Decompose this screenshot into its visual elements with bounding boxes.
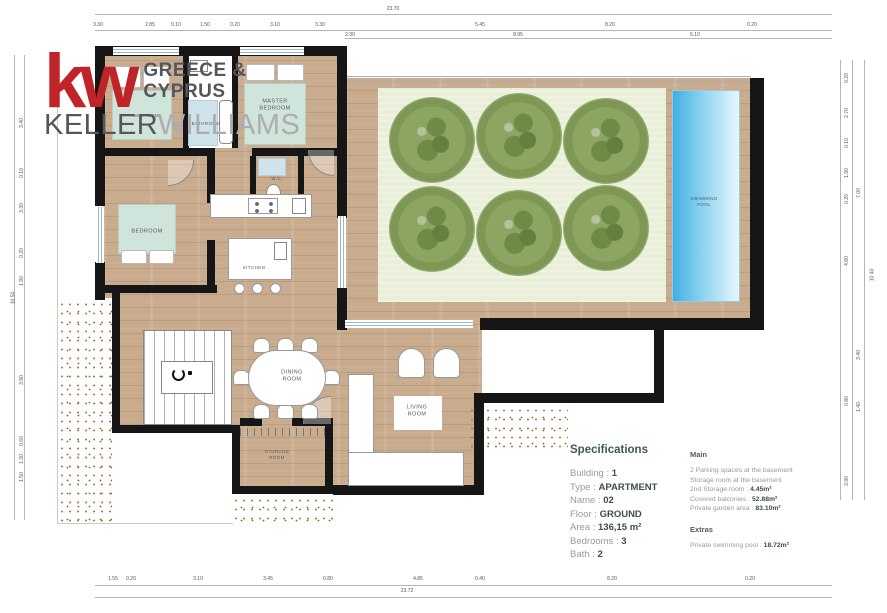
sliding-door-window	[338, 216, 346, 288]
wall-segment	[95, 262, 105, 300]
dim-label: 7.00	[856, 188, 862, 198]
spec-value: 02	[603, 495, 614, 506]
spec-value: 1	[612, 468, 617, 479]
extras-title: Extras	[690, 525, 830, 534]
dim-line	[95, 597, 832, 598]
dim-label: 0.10	[171, 22, 181, 28]
bar-stool	[270, 283, 281, 294]
dim-label: 23.70	[387, 6, 400, 12]
room-label-living-room: LIVING ROOM	[407, 405, 427, 420]
dim-line	[345, 38, 832, 39]
dim-label: 5.45	[475, 22, 485, 28]
dim-label: 1.90	[844, 168, 850, 178]
dim-label: 0.10	[19, 168, 25, 178]
spec-label: Bedrooms :	[570, 536, 621, 547]
spec-row: Building : 1	[570, 467, 690, 481]
wall-segment	[750, 78, 764, 330]
floor-plan-canvas: 23.70 3.302.850.101.500.203.103.305.458.…	[0, 0, 887, 613]
dim-label: 3.40	[856, 350, 862, 360]
tree	[563, 185, 649, 271]
dim-label: 2.30	[345, 32, 355, 38]
main-details-block: Main 2 Parking spaces at the basement St…	[690, 450, 830, 551]
dim-label: 10.50	[10, 292, 16, 305]
dim-label: 0.10	[844, 138, 850, 148]
dim-label: 3.90	[19, 375, 25, 385]
tree	[389, 97, 475, 183]
dim-label: 2.70	[844, 108, 850, 118]
wall-segment	[333, 485, 484, 495]
dim-label: 3.45	[263, 576, 273, 582]
spec-row: Type : APARTMENT	[570, 481, 690, 495]
dim-line	[95, 585, 832, 586]
dim-label: 3.40	[19, 118, 25, 128]
dim-line	[840, 60, 841, 500]
bed-pillow	[149, 250, 174, 264]
dim-line	[14, 55, 15, 520]
gravel-area-left	[58, 300, 112, 522]
dim-label: 1.90	[19, 276, 25, 286]
room-label-storage-room: STORAGE ROOM	[265, 449, 290, 461]
tree	[563, 98, 649, 184]
storage-shelving	[240, 428, 326, 436]
dim-label: 0.40	[475, 576, 485, 582]
wall-segment	[232, 425, 240, 494]
room-label-swimming-pool: SWIMMING POOL	[690, 196, 717, 208]
keller-williams-logo: kw GREECE & CYPRUS KELLERWILLIAMS	[44, 52, 300, 140]
sliding-door-window	[345, 320, 473, 328]
dim-label: 8.20	[605, 22, 615, 28]
dim-label: 1.50	[200, 22, 210, 28]
exterior-below-stairs	[103, 433, 232, 525]
cooktop	[248, 198, 278, 214]
extras-value: 18.72m²	[764, 542, 789, 549]
extras-label: Private swimming pool :	[690, 542, 764, 549]
dim-label: 8.20	[607, 576, 617, 582]
spec-row: Floor : GROUND	[570, 508, 690, 522]
dim-label: 2.85	[145, 22, 155, 28]
main-label: Covered balconies :	[690, 496, 752, 503]
logo-keller: KELLER	[44, 109, 158, 141]
armchair	[398, 348, 425, 378]
dim-label: 0.20	[844, 73, 850, 83]
sofa	[348, 452, 464, 486]
wall-segment	[337, 180, 347, 218]
window	[96, 207, 104, 263]
dim-label: 3.30	[315, 22, 325, 28]
wall-segment	[474, 393, 484, 495]
main-row: Storage room at the basement	[690, 476, 830, 486]
terrace-railing	[345, 76, 751, 82]
dim-label: 1.30	[19, 454, 25, 464]
dining-chair	[301, 404, 318, 419]
dim-label: 0.60	[19, 436, 25, 446]
gravel-area-storage	[232, 496, 334, 526]
dim-label: 0.20	[844, 194, 850, 204]
wall-segment	[112, 293, 120, 433]
dim-label: 0.80	[323, 576, 333, 582]
bed-pillow	[121, 250, 147, 264]
dim-line	[95, 30, 832, 31]
extras-row: Private swimming pool : 18.72m²	[690, 541, 830, 551]
dim-label: 1.50	[19, 472, 25, 482]
dim-label: 0.20	[230, 22, 240, 28]
dim-label: 5.10	[690, 32, 700, 38]
spec-label: Floor :	[570, 509, 600, 520]
dim-label: 1.40	[856, 402, 862, 412]
main-row: Private garden area : 83.10m²	[690, 504, 830, 514]
specifications-title: Specifications	[570, 444, 690, 456]
wall-segment	[654, 318, 760, 330]
dim-label: 1.55	[108, 576, 118, 582]
dim-line	[852, 60, 853, 500]
spec-value: 3	[621, 536, 626, 547]
spec-value: 2	[597, 549, 602, 560]
spec-value: GROUND	[600, 509, 642, 520]
room-label-kitchen: KITCHEN	[243, 265, 266, 271]
dim-label: 4.85	[413, 576, 423, 582]
spec-label: Type :	[570, 482, 599, 493]
wc-shower-floor	[258, 158, 286, 176]
dining-chair	[277, 404, 294, 419]
kitchen-sink	[292, 198, 306, 214]
wall-segment	[325, 418, 333, 494]
specifications-block: Specifications Building : 1 Type : APART…	[570, 444, 690, 562]
wall-segment	[95, 148, 215, 156]
dim-label: 0.20	[745, 576, 755, 582]
logo-brand-text: KELLERWILLIAMS	[44, 111, 300, 140]
main-value: 83.10m²	[755, 505, 780, 512]
main-value: 52.88m²	[752, 496, 777, 503]
wall-segment	[95, 285, 217, 293]
spec-row: Bedrooms : 3	[570, 535, 690, 549]
armchair	[433, 348, 460, 378]
spec-label: Bath :	[570, 549, 597, 560]
room-label-dining-room: DINING ROOM	[281, 370, 303, 385]
wall-segment	[240, 418, 262, 426]
spec-value: APARTMENT	[599, 482, 658, 493]
turning-radius-icon	[172, 368, 185, 381]
wall-segment	[480, 318, 654, 330]
main-label: Private garden area :	[690, 505, 755, 512]
main-label: Storage room at the basement	[690, 477, 782, 484]
turning-radius-dot	[188, 371, 192, 375]
spec-label: Building :	[570, 468, 612, 479]
tree	[476, 93, 562, 179]
dim-label: 0.20	[126, 576, 136, 582]
dim-label: 10.40	[869, 269, 875, 282]
main-row: Covered balconies : 52.88m²	[690, 495, 830, 505]
dining-chair	[253, 404, 270, 419]
dim-label: 3.30	[93, 22, 103, 28]
wall-segment	[474, 393, 664, 403]
dim-label: 0.20	[19, 248, 25, 258]
spec-label: Area :	[570, 522, 598, 533]
spec-row: Bath : 2	[570, 548, 690, 562]
dim-label: 3.30	[19, 203, 25, 213]
dim-label: 8.95	[513, 32, 523, 38]
plot-boundary-bottom	[57, 523, 233, 524]
spec-row: Name : 02	[570, 494, 690, 508]
room-label-wc: W.C.	[271, 176, 282, 182]
dim-label: 0.80	[844, 396, 850, 406]
spec-row: Area : 136,15 m²	[570, 521, 690, 535]
stair-landing	[161, 361, 213, 394]
logo-region-text: GREECE & CYPRUS	[143, 61, 246, 103]
main-row: 2 Parking spaces at the basement	[690, 466, 830, 476]
dim-label: 3.90	[844, 476, 850, 486]
wall-segment	[112, 425, 240, 433]
room-label-bedroom: BEDROOM	[131, 228, 162, 235]
wall-segment	[232, 486, 333, 494]
main-label: 2nd Storage room :	[690, 486, 750, 493]
main-label: 2 Parking spaces at the basement	[690, 467, 793, 474]
island-sink	[274, 242, 287, 260]
kw-logo-mark: kw	[44, 52, 133, 111]
dim-line	[864, 60, 865, 500]
wall-segment	[654, 318, 664, 403]
bar-stool	[234, 283, 245, 294]
main-title: Main	[690, 450, 830, 459]
main-row: 2nd Storage room : 4.45m²	[690, 485, 830, 495]
spec-label: Name :	[570, 495, 603, 506]
wall-segment	[337, 46, 347, 180]
spec-value: 136,15 m²	[598, 522, 641, 533]
dim-label: 0.20	[747, 22, 757, 28]
dim-label: 23.72	[401, 588, 414, 594]
dim-label: 3.10	[270, 22, 280, 28]
dim-line	[95, 14, 832, 15]
bar-stool	[252, 283, 263, 294]
dim-label: 4.80	[844, 256, 850, 266]
main-value: 4.45m²	[750, 486, 772, 493]
logo-williams: WILLIAMS	[158, 109, 301, 141]
tree	[389, 186, 475, 272]
dim-label: 3.10	[193, 576, 203, 582]
tree	[476, 190, 562, 276]
